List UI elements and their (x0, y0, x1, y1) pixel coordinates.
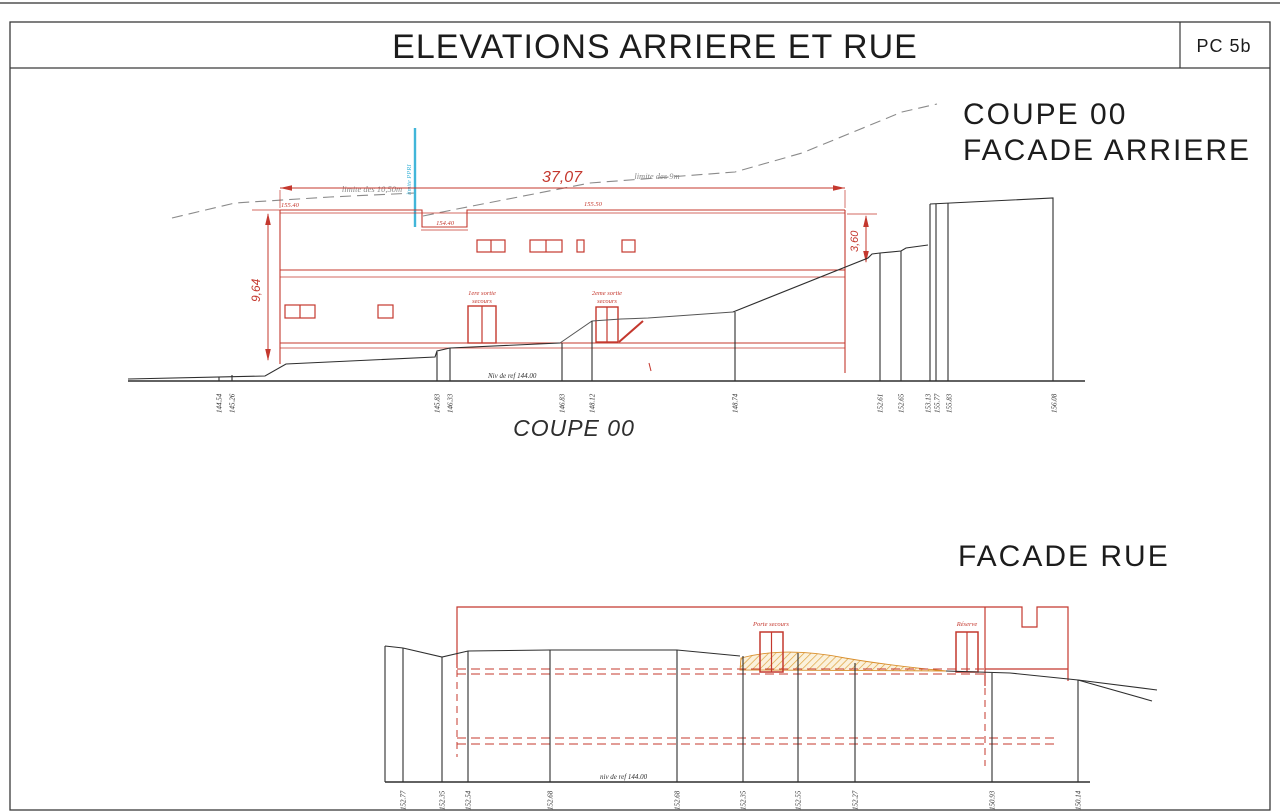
dim-height-right: 3,60 (847, 214, 877, 263)
dim-height-left-value: 9,64 (249, 278, 263, 302)
facade-rue-drawing: FACADE RUE Porte secours Réserve (385, 540, 1170, 810)
exit-door-1-label-l2: secours (472, 298, 492, 305)
dim-arrow-top (863, 215, 869, 227)
terrain-slope (733, 245, 928, 312)
ground-label: 146.33 (447, 393, 455, 413)
drawing-sheet: ELEVATIONS ARRIERE ET RUE PC 5b COUPE 00… (0, 0, 1280, 812)
level-notch: 154.40 (436, 220, 455, 227)
ground-label: 148.74 (732, 393, 740, 413)
limit-10-50-label: limite des 10,50m (342, 184, 402, 194)
ground-label: 152.77 (400, 790, 408, 810)
roof-line (280, 210, 845, 227)
dim-arrow-bottom (265, 349, 271, 361)
wall-cap (385, 646, 403, 648)
sheet-ref: PC 5b (1196, 36, 1251, 56)
ground-label: 152.61 (877, 394, 885, 413)
ground-label: 152.27 (852, 790, 860, 810)
red-tick (649, 363, 651, 371)
coupe-heading-line2: FACADE ARRIERE (963, 134, 1251, 167)
exit-door-2-label-l1: 2eme sortie (592, 290, 622, 297)
ground-label: 155.83 (946, 393, 954, 413)
ground-label: 152.35 (740, 790, 748, 810)
dim-width: 37,07 (280, 169, 845, 208)
ground-label: 145.26 (229, 393, 237, 413)
ppri-limit: limite PPRI (406, 128, 415, 227)
coupe-heading-line1: COUPE 00 (963, 98, 1127, 131)
exit-doors: 1ere sortie secours 2eme sortie secours (468, 290, 651, 371)
ground-label: 152.35 (439, 790, 447, 810)
dim-width-value: 37,07 (542, 169, 583, 186)
sheet-title: ELEVATIONS ARRIERE ET RUE (392, 28, 918, 66)
ground-label: 148.12 (589, 393, 597, 413)
dim-arrow-top (265, 213, 271, 225)
wall-top-line (403, 648, 740, 657)
dim-arrow-left (280, 185, 292, 191)
level-annotations: 155.40 154.40 155.50 Niv de ref 144.00 (281, 201, 603, 380)
ground-label: 155.77 (934, 393, 942, 413)
ground-label: 150.93 (989, 790, 997, 810)
street-building-outline (457, 607, 1068, 766)
porte-secours-label: Porte secours (752, 621, 789, 628)
ground-label: 152.65 (898, 393, 906, 413)
facade-heading: FACADE RUE (958, 540, 1170, 573)
street-ref-level: niv de ref 144.00 (600, 773, 648, 781)
ground-label: 152.68 (547, 790, 555, 810)
dim-arrow-bottom (863, 251, 869, 263)
terrain-mid (560, 312, 733, 343)
coupe-00-drawing: COUPE 00 FACADE ARRIERE limite des 10,50… (128, 98, 1251, 441)
level-top-right: 155.50 (584, 201, 603, 208)
ground-label: 156.08 (1051, 393, 1059, 413)
ground-label: 144.54 (216, 393, 224, 413)
exit-door-2-label-l2: secours (597, 298, 617, 305)
limit-lines: limite des 10,50m limite des 9m (172, 104, 937, 218)
ground-label: 152.55 (795, 790, 803, 810)
limit-9-label: limite des 9m (634, 171, 679, 181)
dim-height-right-value: 3,60 (849, 230, 861, 252)
reserve-label: Réserve (956, 621, 978, 628)
ground-label: 145.83 (434, 393, 442, 413)
ground-label: 150.14 (1075, 790, 1083, 810)
window (577, 240, 584, 252)
ref-level-label: Niv de ref 144.00 (487, 372, 537, 380)
lower-windows (285, 305, 393, 318)
dim-arrow-right (833, 185, 845, 191)
ground-label: 146.83 (559, 393, 567, 413)
exit-door-1-label-l1: 1ere sortie (468, 290, 496, 297)
coupe-ground-labels: 144.54 145.26 145.83 146.33 146.83 148.1… (216, 393, 1059, 413)
coupe-caption: COUPE 00 (513, 415, 635, 441)
door-ramp (619, 321, 643, 342)
dim-height-left: 9,64 (249, 210, 281, 361)
facade-ground-labels: 152.77 152.35 152.54 152.68 152.68 152.3… (400, 790, 1083, 810)
level-top-left: 155.40 (281, 202, 300, 209)
window (378, 305, 393, 318)
elevation-drawing: ELEVATIONS ARRIERE ET RUE PC 5b COUPE 00… (0, 0, 1280, 812)
ppri-label: limite PPRI (406, 164, 413, 195)
upper-windows (477, 240, 635, 252)
ground-label: 152.68 (674, 790, 682, 810)
window (622, 240, 635, 252)
terrain-right-slope-2 (1078, 680, 1152, 701)
ground-label: 152.54 (465, 790, 473, 810)
ground-label: 153.13 (925, 393, 933, 413)
limit-9-line (423, 104, 937, 216)
